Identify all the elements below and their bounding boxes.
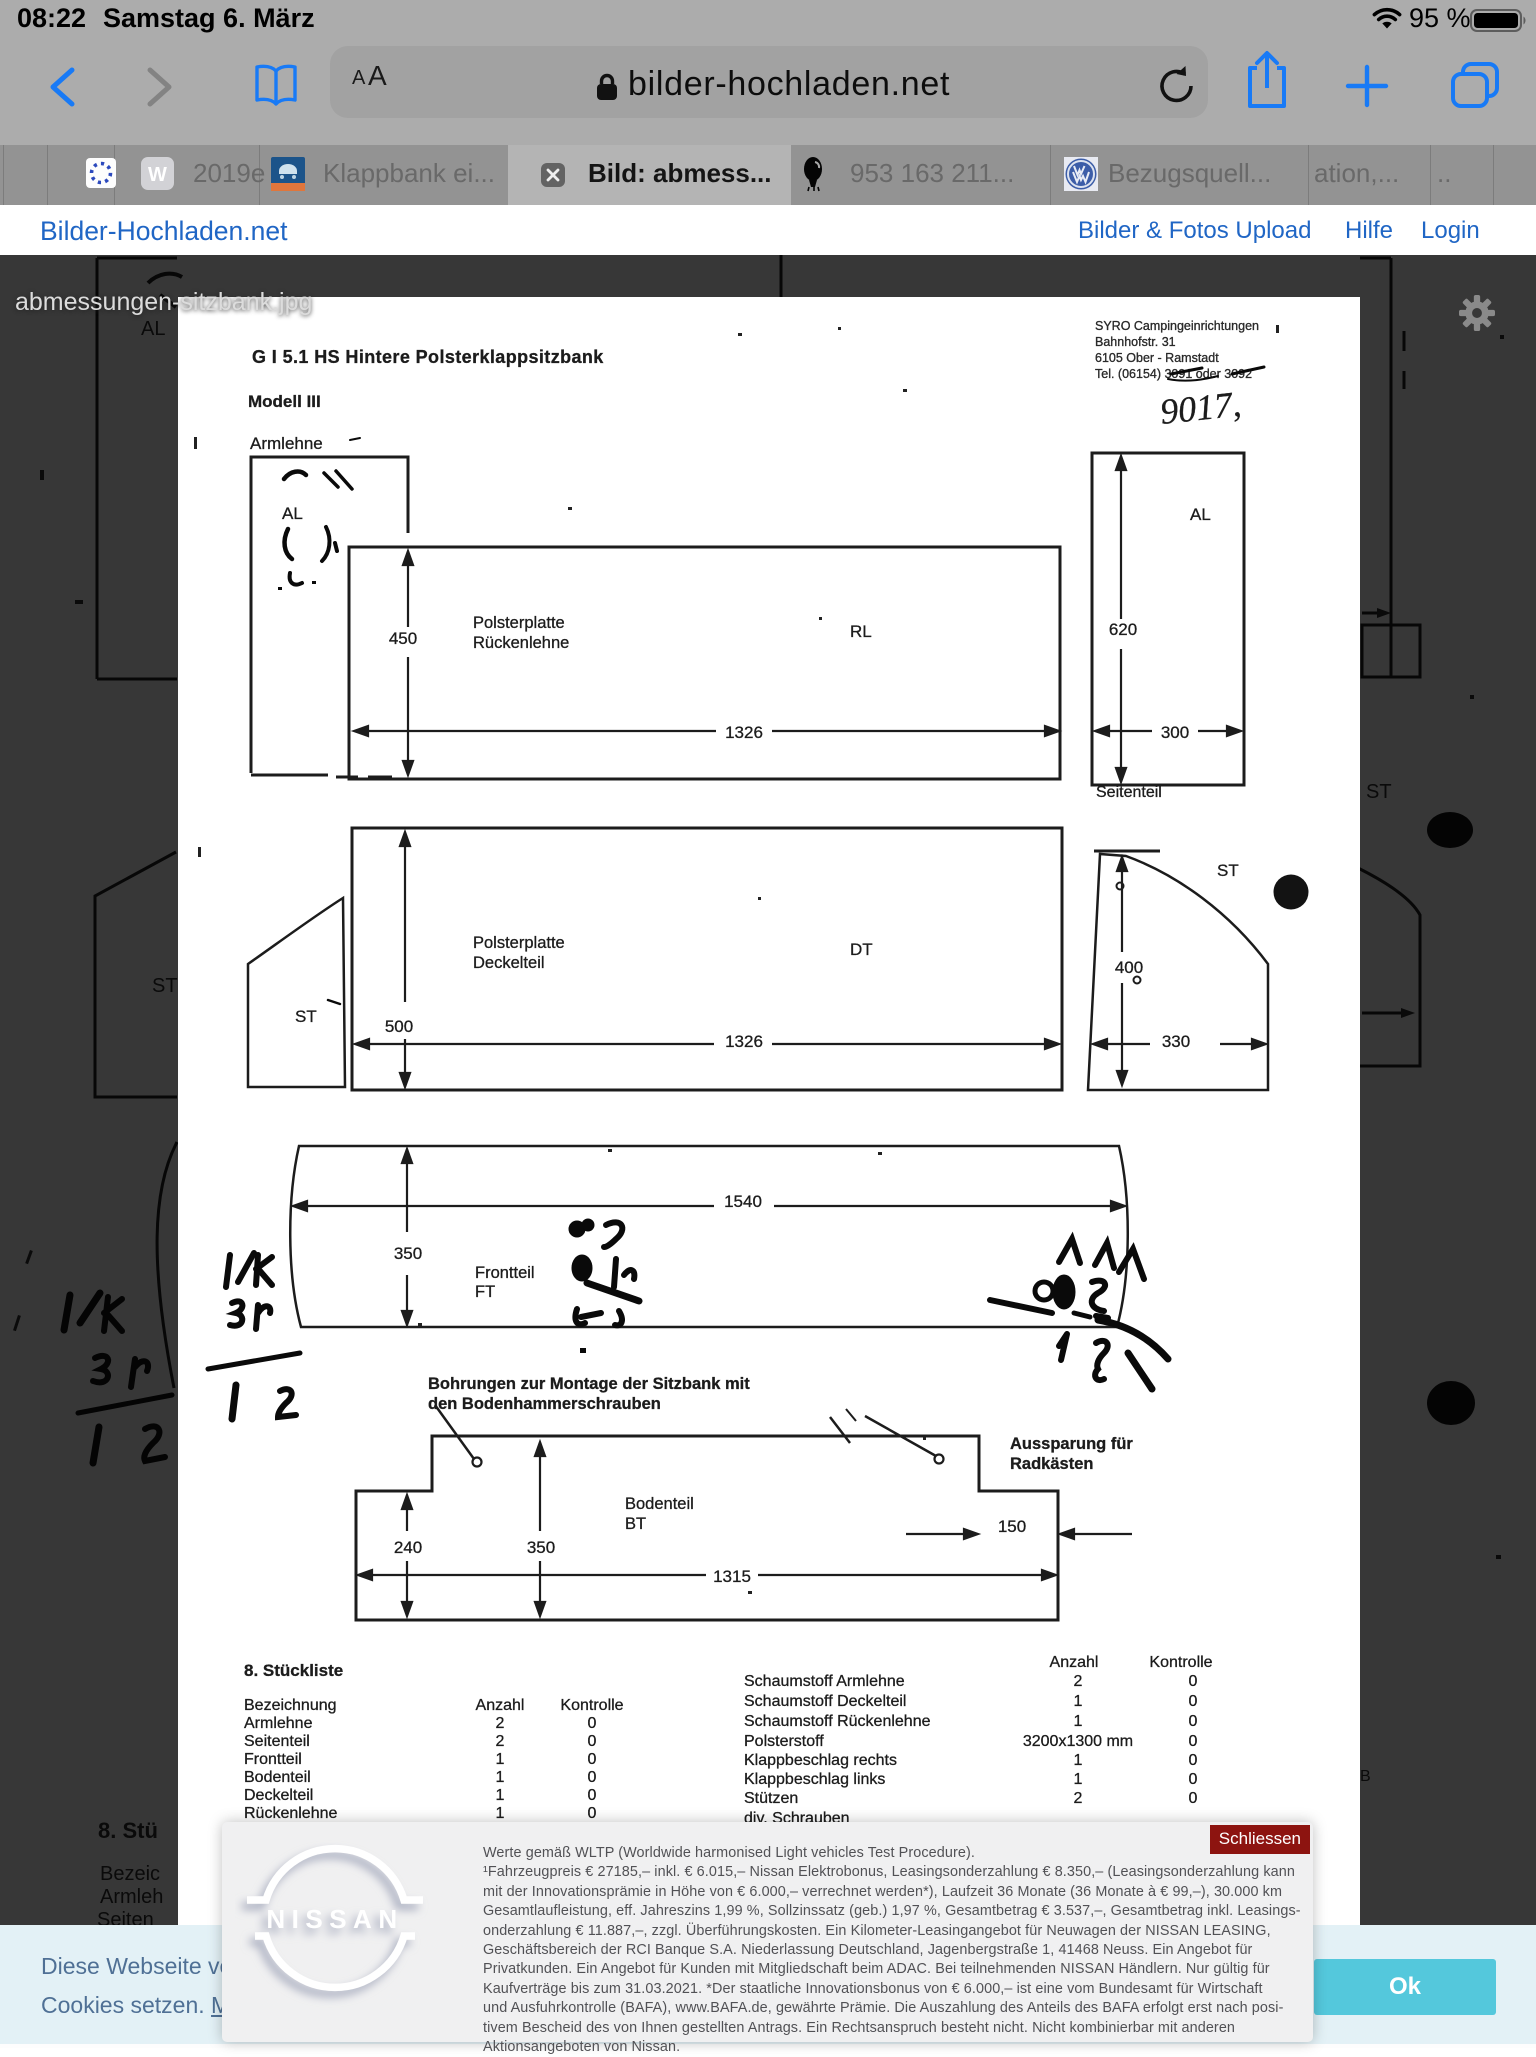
svg-text:Bahnhofstr. 31: Bahnhofstr. 31 bbox=[1095, 335, 1176, 349]
svg-text:Aussparung für: Aussparung für bbox=[1010, 1435, 1133, 1453]
svg-text:2: 2 bbox=[496, 1733, 505, 1750]
svg-text:1: 1 bbox=[1074, 1693, 1083, 1710]
svg-text:Radkästen: Radkästen bbox=[1010, 1455, 1093, 1473]
svg-text:1: 1 bbox=[496, 1769, 505, 1786]
svg-text:350: 350 bbox=[527, 1538, 555, 1557]
svg-text:Seitenteil: Seitenteil bbox=[244, 1733, 310, 1750]
svg-text:Anzahl: Anzahl bbox=[1050, 1654, 1099, 1671]
svg-text:1: 1 bbox=[496, 1787, 505, 1804]
svg-text:Bezeichnung: Bezeichnung bbox=[244, 1697, 337, 1714]
svg-text:3200x1300 mm: 3200x1300 mm bbox=[1023, 1733, 1133, 1750]
svg-text:Schaumstoff Armlehne: Schaumstoff Armlehne bbox=[744, 1673, 905, 1690]
svg-text:0: 0 bbox=[1189, 1713, 1198, 1730]
svg-text:Bodenteil: Bodenteil bbox=[244, 1769, 311, 1786]
svg-text:500: 500 bbox=[385, 1017, 413, 1036]
svg-text:300: 300 bbox=[1161, 723, 1189, 742]
svg-text:Frontteil: Frontteil bbox=[244, 1751, 302, 1768]
svg-text:0: 0 bbox=[588, 1805, 597, 1822]
svg-text:Armlehne: Armlehne bbox=[244, 1715, 313, 1732]
svg-text:0: 0 bbox=[1189, 1771, 1198, 1788]
svg-text:Rückenlehne: Rückenlehne bbox=[473, 634, 569, 652]
svg-text:1: 1 bbox=[496, 1805, 505, 1822]
svg-text:Schaumstoff Rückenlehne: Schaumstoff Rückenlehne bbox=[744, 1713, 931, 1730]
svg-text:DT: DT bbox=[850, 940, 873, 959]
svg-text:0: 0 bbox=[588, 1787, 597, 1804]
svg-text:1: 1 bbox=[1074, 1752, 1083, 1769]
svg-text:240: 240 bbox=[394, 1538, 422, 1557]
svg-text:Bohrungen zur Montage der Sitz: Bohrungen zur Montage der Sitzbank mit bbox=[428, 1375, 750, 1393]
svg-text:450: 450 bbox=[389, 629, 417, 648]
svg-text:Polsterplatte: Polsterplatte bbox=[473, 934, 565, 952]
svg-text:AL: AL bbox=[141, 318, 165, 340]
svg-text:Klappbeschlag links: Klappbeschlag links bbox=[744, 1771, 885, 1788]
svg-text:BT: BT bbox=[625, 1515, 646, 1533]
svg-text:1540: 1540 bbox=[724, 1192, 762, 1211]
svg-text:Armleh: Armleh bbox=[100, 1886, 163, 1908]
svg-text:Deckelteil: Deckelteil bbox=[244, 1787, 313, 1804]
svg-text:Polsterplatte: Polsterplatte bbox=[473, 614, 565, 632]
svg-text:0: 0 bbox=[1189, 1790, 1198, 1807]
svg-text:ST: ST bbox=[1217, 861, 1239, 880]
svg-text:Anzahl: Anzahl bbox=[476, 1697, 525, 1714]
svg-text:W: W bbox=[148, 164, 167, 186]
svg-text:2: 2 bbox=[496, 1715, 505, 1732]
svg-text:0: 0 bbox=[1189, 1693, 1198, 1710]
svg-text:Klappbeschlag rechts: Klappbeschlag rechts bbox=[744, 1752, 897, 1769]
svg-text:Kontrolle: Kontrolle bbox=[1149, 1654, 1212, 1671]
svg-text:1: 1 bbox=[1074, 1771, 1083, 1788]
svg-text:AL: AL bbox=[1190, 505, 1211, 524]
svg-text:350: 350 bbox=[394, 1244, 422, 1263]
svg-text:Bodenteil: Bodenteil bbox=[625, 1495, 694, 1513]
svg-text:Seitenteil: Seitenteil bbox=[1096, 784, 1162, 801]
svg-text:0: 0 bbox=[588, 1751, 597, 1768]
svg-text:Schaumstoff Deckelteil: Schaumstoff Deckelteil bbox=[744, 1693, 906, 1710]
svg-text:Frontteil: Frontteil bbox=[475, 1264, 535, 1282]
svg-text:AL: AL bbox=[282, 504, 303, 523]
svg-text:Kontrolle: Kontrolle bbox=[560, 1697, 623, 1714]
svg-text:Modell III: Modell III bbox=[248, 392, 321, 411]
svg-text:0: 0 bbox=[1189, 1673, 1198, 1690]
svg-text:G I 5.1 HS Hintere Polsterklap: G I 5.1 HS Hintere Polsterklappsitzbank bbox=[252, 347, 604, 367]
svg-text:8. Stückliste: 8. Stückliste bbox=[244, 1661, 343, 1680]
svg-text:Armlehne: Armlehne bbox=[250, 434, 323, 453]
svg-text:1: 1 bbox=[1074, 1713, 1083, 1730]
svg-text:400: 400 bbox=[1115, 958, 1143, 977]
svg-text:B: B bbox=[1360, 1768, 1371, 1785]
svg-text:1326: 1326 bbox=[725, 1032, 763, 1051]
svg-text:2: 2 bbox=[1074, 1673, 1083, 1690]
svg-text:1315: 1315 bbox=[713, 1567, 751, 1586]
svg-text:0: 0 bbox=[588, 1733, 597, 1750]
svg-text:8. Stü: 8. Stü bbox=[98, 1818, 158, 1843]
svg-text:Stützen: Stützen bbox=[744, 1790, 798, 1807]
svg-text:1: 1 bbox=[496, 1751, 505, 1768]
svg-text:0: 0 bbox=[588, 1769, 597, 1786]
svg-text:620: 620 bbox=[1109, 620, 1137, 639]
svg-text:Polsterstoff: Polsterstoff bbox=[744, 1733, 824, 1750]
svg-text:9017,: 9017, bbox=[1158, 384, 1243, 432]
svg-text:NISSAN: NISSAN bbox=[266, 1904, 403, 1934]
svg-text:RL: RL bbox=[850, 622, 872, 641]
svg-text:150: 150 bbox=[998, 1517, 1026, 1536]
svg-text:ST: ST bbox=[1366, 781, 1392, 803]
svg-text:6105 Ober - Ramstadt: 6105 Ober - Ramstadt bbox=[1095, 351, 1219, 365]
svg-text:Bezeic: Bezeic bbox=[100, 1863, 160, 1885]
svg-text:Deckelteil: Deckelteil bbox=[473, 954, 545, 972]
svg-text:2: 2 bbox=[1074, 1790, 1083, 1807]
svg-text:Rückenlehne: Rückenlehne bbox=[244, 1805, 338, 1822]
svg-text:ST: ST bbox=[152, 975, 178, 997]
svg-text:0: 0 bbox=[1189, 1733, 1198, 1750]
svg-text:330: 330 bbox=[1162, 1032, 1190, 1051]
svg-text:den Bodenhammerschrauben: den Bodenhammerschrauben bbox=[428, 1395, 661, 1413]
svg-text:0: 0 bbox=[1189, 1752, 1198, 1769]
svg-text:0: 0 bbox=[588, 1715, 597, 1732]
svg-text:FT: FT bbox=[475, 1283, 495, 1301]
svg-text:1326: 1326 bbox=[725, 723, 763, 742]
svg-text:SYRO Campingeinrichtungen: SYRO Campingeinrichtungen bbox=[1095, 319, 1259, 333]
svg-text:ST: ST bbox=[295, 1007, 317, 1026]
